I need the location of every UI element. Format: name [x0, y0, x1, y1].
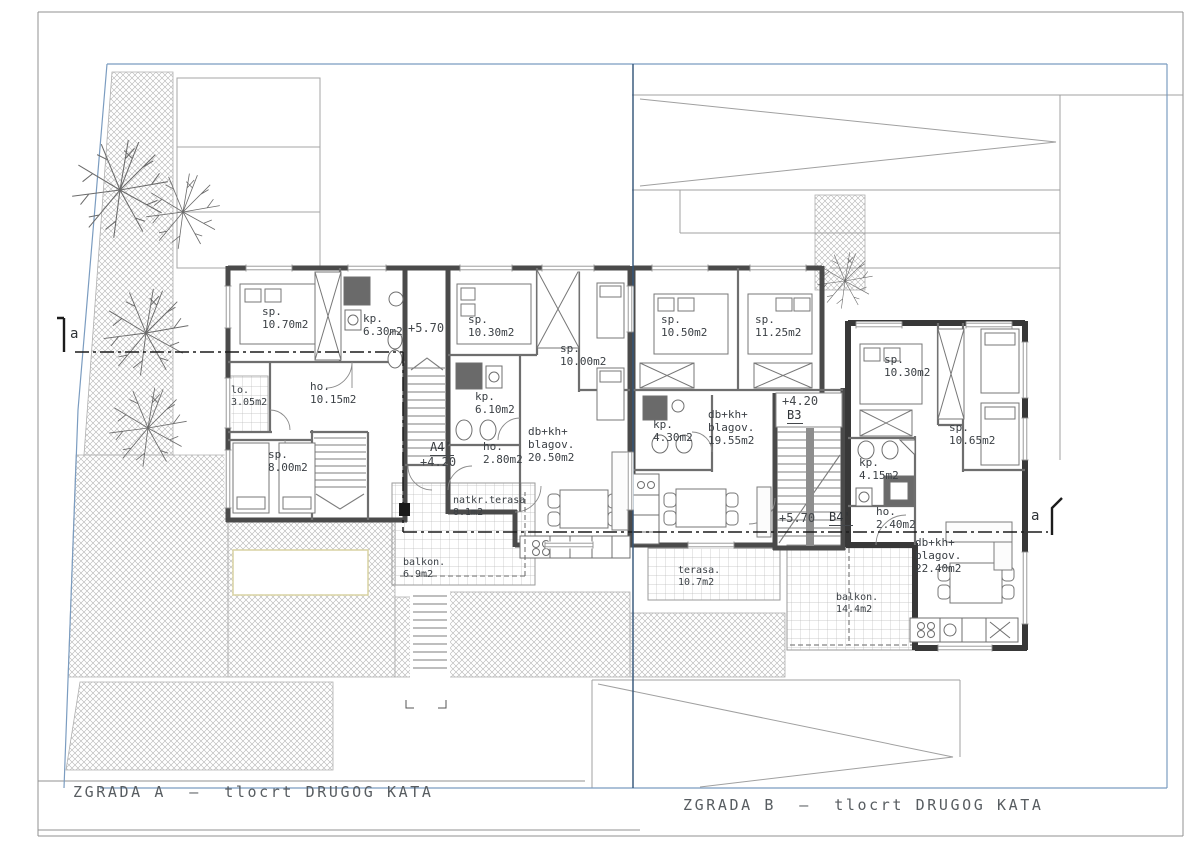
room-label-b-balcony: balkon. 14.4m2 [836, 592, 878, 616]
plan-marker-b3: B3 [787, 409, 803, 424]
room-label-a-west-bedroom2: sp. 8.00m2 [268, 448, 308, 474]
room-label-a-east-hall: ho. 2.80m2 [483, 440, 523, 466]
section-flag-left [57, 318, 64, 352]
floor-plan-sheet: sp. 10.70m2 kp. 6.30m2 lo. 3.05m2 ho. 10… [0, 0, 1200, 848]
room-label-b-west-bathroom: kp. 4.30m2 [653, 418, 693, 444]
room-label-a-balcony: balkon. 6.9m2 [403, 557, 445, 581]
room-label-a-east-bathroom: kp. 6.10m2 [475, 390, 515, 416]
room-label-a-west-bedroom1: sp. 10.70m2 [262, 305, 308, 331]
room-label-b-east-living: db+kh+ blagov. 22.40m2 [915, 536, 961, 575]
lower-terrace-cutout [233, 550, 368, 595]
room-label-a-covered-terrace: natkr.terasa 8.1m2 [453, 495, 525, 519]
level-label-a-stair: +5.70 [408, 322, 444, 335]
room-label-b-east-bedroom2: sp. 10.65m2 [949, 421, 995, 447]
level-label-b-entry: +4.20 [782, 395, 818, 408]
external-stair-clear [410, 588, 450, 680]
corner-marks [406, 700, 446, 708]
level-label-a-entry: +4.20 [420, 456, 456, 469]
room-label-a-east-living: db+kh+ blagov. 20.50m2 [528, 425, 574, 464]
room-label-b-east-bathroom: kp. 4.15m2 [859, 456, 899, 482]
room-label-b-terrace: terasa. 10.7m2 [678, 565, 720, 589]
room-label-b-west-living: db+kh+ blagov. 19.55m2 [708, 408, 754, 447]
room-label-b-east-bedroom1: sp. 10.30m2 [884, 353, 930, 379]
section-letter-right: a [1031, 510, 1039, 523]
room-label-b-west-bedroom2: sp. 11.25m2 [755, 313, 801, 339]
room-label-a-west-hall: ho. 10.15m2 [310, 380, 356, 406]
room-label-a-east-bedroom1: sp. 10.30m2 [468, 313, 514, 339]
level-label-b-stair: +5.70 [779, 512, 815, 525]
title-building-b: ZGRADA B – tlocrt DRUGOG KATA [683, 796, 1044, 814]
room-label-a-east-bedroom2: sp. 10.00m2 [560, 342, 606, 368]
site-plan-drawing [0, 0, 1200, 848]
plan-marker-a4: A4' [430, 441, 454, 456]
driveway-ramp-south [592, 680, 960, 788]
shaft-marker [399, 503, 410, 516]
plan-marker-b4: B4' [829, 511, 853, 526]
room-label-b-east-hall: ho. 2.40m2 [876, 505, 916, 531]
section-letter-left: a [70, 328, 78, 341]
room-label-a-west-loggia: lo. 3.05m2 [231, 385, 267, 409]
section-flag-right [1052, 498, 1062, 535]
room-label-b-west-bedroom1: sp. 10.50m2 [661, 313, 707, 339]
driveway-ramp-north [632, 95, 1183, 460]
room-label-a-west-bathroom: kp. 6.30m2 [363, 312, 403, 338]
title-building-a: ZGRADA A – tlocrt DRUGOG KATA [73, 783, 434, 801]
